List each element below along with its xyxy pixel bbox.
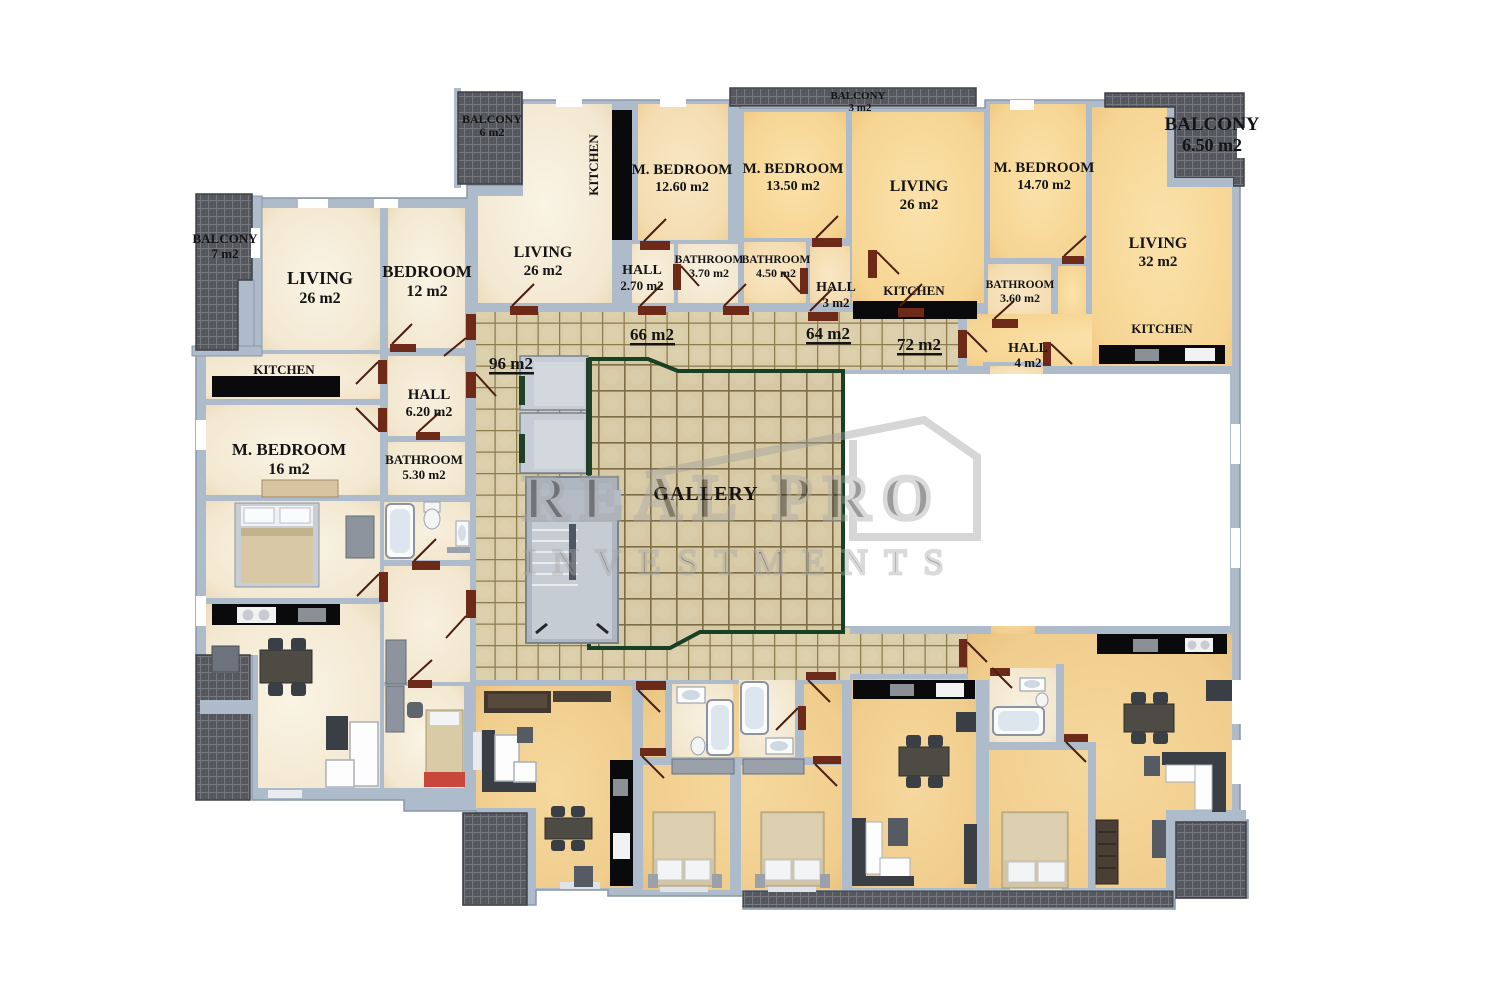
svg-text:2.70 m2: 2.70 m2: [620, 278, 663, 293]
svg-text:M. BEDROOM: M. BEDROOM: [994, 160, 1095, 176]
svg-text:13.50 m2: 13.50 m2: [766, 179, 820, 194]
svg-text:3 m2: 3 m2: [849, 102, 872, 114]
svg-text:3.60 m2: 3.60 m2: [1000, 291, 1040, 305]
svg-text:M. BEDROOM: M. BEDROOM: [743, 161, 844, 177]
svg-text:12.60 m2: 12.60 m2: [655, 180, 709, 195]
svg-text:KITCHEN: KITCHEN: [883, 283, 945, 298]
svg-text:64 m2: 64 m2: [806, 324, 850, 343]
svg-text:BALCONY: BALCONY: [462, 112, 522, 126]
svg-text:HALL: HALL: [408, 387, 451, 403]
svg-text:26 m2: 26 m2: [900, 197, 939, 213]
svg-text:96 m2: 96 m2: [489, 354, 533, 373]
svg-text:14.70 m2: 14.70 m2: [1017, 178, 1071, 193]
svg-text:M. BEDROOM: M. BEDROOM: [632, 162, 733, 178]
svg-text:LIVING: LIVING: [514, 244, 573, 261]
svg-text:3 m2: 3 m2: [822, 295, 849, 310]
svg-text:BATHROOM: BATHROOM: [742, 254, 811, 266]
svg-text:BALCONY: BALCONY: [192, 231, 258, 246]
svg-text:KITCHEN: KITCHEN: [586, 134, 601, 196]
svg-text:BALCONY: BALCONY: [1164, 114, 1259, 135]
svg-text:KITCHEN: KITCHEN: [253, 362, 315, 377]
svg-text:32 m2: 32 m2: [1139, 254, 1178, 270]
svg-text:5.30 m2: 5.30 m2: [402, 467, 445, 482]
svg-text:6.20 m2: 6.20 m2: [406, 405, 453, 420]
svg-text:BATHROOM: BATHROOM: [986, 279, 1055, 291]
svg-text:KITCHEN: KITCHEN: [1131, 321, 1193, 336]
svg-text:26 m2: 26 m2: [299, 290, 340, 307]
svg-text:HALL: HALL: [816, 280, 856, 295]
svg-text:BEDROOM: BEDROOM: [382, 262, 472, 281]
svg-text:4.50 m2: 4.50 m2: [756, 266, 796, 280]
svg-text:12 m2: 12 m2: [406, 283, 447, 300]
svg-text:LIVING: LIVING: [287, 268, 353, 288]
svg-text:HALL: HALL: [622, 263, 662, 278]
svg-text:6.50 m2: 6.50 m2: [1182, 135, 1242, 155]
svg-text:66 m2: 66 m2: [630, 325, 674, 344]
svg-text:3.70 m2: 3.70 m2: [689, 266, 729, 280]
svg-text:LIVING: LIVING: [890, 178, 949, 195]
svg-text:BALCONY: BALCONY: [830, 90, 885, 102]
svg-text:INVESTMENTS: INVESTMENTS: [524, 542, 961, 582]
svg-text:BATHROOM: BATHROOM: [675, 254, 744, 266]
svg-text:REAL PRO: REAL PRO: [522, 462, 943, 533]
svg-text:26 m2: 26 m2: [524, 263, 563, 279]
svg-text:7 m2: 7 m2: [211, 246, 238, 261]
svg-text:LIVING: LIVING: [1129, 235, 1188, 252]
svg-text:HALL: HALL: [1008, 341, 1048, 356]
svg-text:72 m2: 72 m2: [897, 335, 941, 354]
svg-text:BATHROOM: BATHROOM: [385, 452, 463, 467]
svg-text:6 m2: 6 m2: [480, 125, 505, 139]
svg-text:M. BEDROOM: M. BEDROOM: [232, 440, 346, 459]
svg-text:4 m2: 4 m2: [1014, 355, 1041, 370]
svg-text:16 m2: 16 m2: [268, 461, 309, 478]
